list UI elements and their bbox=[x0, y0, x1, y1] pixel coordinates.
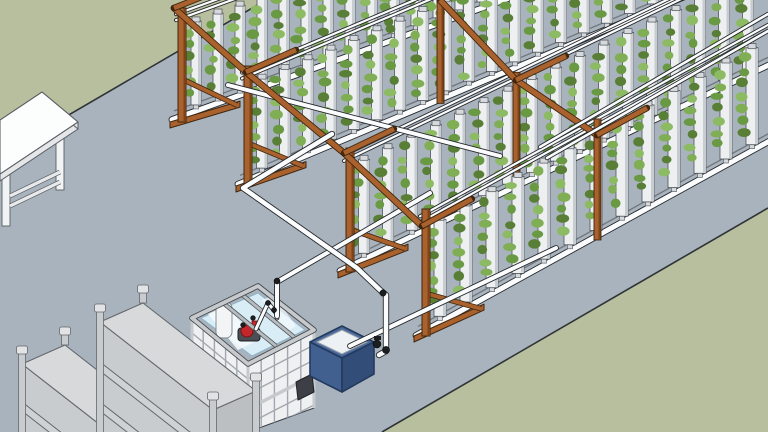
plant-foliage bbox=[584, 155, 594, 163]
plant-foliage bbox=[496, 143, 506, 151]
plant-foliage bbox=[594, 10, 606, 18]
plant-foliage bbox=[583, 165, 594, 172]
plant-foliage bbox=[496, 109, 508, 117]
plant-foliage bbox=[364, 73, 377, 82]
plant-foliage bbox=[659, 134, 671, 141]
plant-foliage bbox=[315, 15, 327, 23]
plant-foliage bbox=[503, 14, 514, 23]
plant-foliage bbox=[480, 269, 492, 276]
plant-foliage bbox=[739, 52, 752, 62]
plant-foliage bbox=[478, 25, 488, 32]
plant-foliage bbox=[528, 239, 540, 249]
plant-foliage bbox=[606, 160, 619, 170]
plant-foliage bbox=[585, 201, 593, 209]
tower-cap bbox=[258, 74, 266, 79]
plant-foliage bbox=[340, 60, 353, 68]
valve-handle bbox=[374, 336, 381, 340]
plant-foliage bbox=[297, 88, 308, 96]
plant-foliage bbox=[564, 76, 577, 85]
plant-foliage bbox=[479, 220, 492, 228]
plant-foliage bbox=[363, 51, 374, 59]
plant-foliage bbox=[478, 61, 487, 68]
plant-foliage bbox=[251, 108, 261, 116]
plant-foliage bbox=[249, 17, 262, 27]
grow-tower bbox=[658, 87, 680, 192]
plant-foliage bbox=[205, 65, 216, 75]
plant-foliage bbox=[375, 229, 386, 236]
plant-foliage bbox=[362, 85, 373, 94]
plant-foliage bbox=[572, 11, 582, 19]
plant-foliage bbox=[206, 21, 215, 29]
plant-foliage bbox=[293, 80, 304, 87]
plant-foliage bbox=[608, 185, 617, 194]
plant-foliage bbox=[519, 123, 530, 132]
plant-foliage bbox=[660, 98, 671, 108]
plant-foliage bbox=[420, 157, 433, 165]
plant-foliage bbox=[711, 130, 723, 137]
plant-foliage bbox=[477, 245, 487, 254]
plant-foliage bbox=[457, 47, 466, 54]
plant-foliage bbox=[318, 4, 327, 12]
plant-foliage bbox=[557, 227, 570, 236]
plant-foliage bbox=[735, 104, 747, 113]
plant-foliage bbox=[399, 141, 410, 150]
plant-foliage bbox=[318, 92, 329, 102]
plant-foliage bbox=[549, 30, 561, 38]
tower-cap bbox=[514, 172, 522, 177]
plant-foliage bbox=[544, 85, 556, 95]
plant-foliage bbox=[607, 141, 618, 149]
tower-cap bbox=[576, 52, 584, 57]
plant-foliage bbox=[609, 176, 618, 184]
plant-foliage bbox=[637, 183, 646, 190]
plant-foliage bbox=[296, 136, 306, 146]
plant-foliage bbox=[290, 35, 303, 44]
plant-foliage bbox=[447, 168, 460, 177]
plant-foliage bbox=[411, 65, 423, 75]
plant-foliage bbox=[712, 139, 723, 147]
grow-tower bbox=[555, 144, 576, 249]
shelf-post-cap bbox=[208, 392, 219, 400]
plant-foliage bbox=[573, 21, 582, 28]
shelf-post-cap bbox=[251, 373, 262, 381]
plant-foliage bbox=[429, 276, 438, 285]
plant-foliage bbox=[684, 144, 696, 151]
plant-foliage bbox=[341, 94, 353, 102]
plant-foliage bbox=[398, 157, 407, 164]
plant-foliage bbox=[231, 37, 240, 44]
tower-cap bbox=[304, 55, 312, 60]
plant-foliage bbox=[637, 29, 649, 37]
plant-foliage bbox=[737, 115, 748, 125]
plant-foliage bbox=[494, 133, 503, 140]
plant-foliage bbox=[272, 137, 282, 146]
plant-foliage bbox=[479, 259, 491, 266]
plant-foliage bbox=[343, 105, 353, 113]
plant-foliage bbox=[688, 130, 698, 139]
tower-cap bbox=[480, 98, 488, 103]
plant-foliage bbox=[271, 10, 283, 19]
plant-foliage bbox=[505, 182, 517, 189]
plant-foliage bbox=[468, 108, 481, 116]
tower-cap bbox=[648, 17, 656, 22]
plant-foliage bbox=[544, 73, 552, 81]
plant-foliage bbox=[384, 89, 396, 97]
tower-cap bbox=[419, 7, 427, 12]
plant-foliage bbox=[411, 79, 424, 87]
plant-foliage bbox=[248, 52, 259, 59]
plant-foliage bbox=[400, 178, 410, 188]
plant-foliage bbox=[527, 5, 539, 13]
plant-foliage bbox=[685, 32, 695, 39]
plant-foliage bbox=[209, 56, 218, 63]
plant-foliage bbox=[533, 205, 543, 215]
plant-foliage bbox=[473, 170, 484, 178]
shelf-post-cap bbox=[95, 304, 106, 312]
plant-foliage bbox=[505, 221, 515, 229]
plant-foliage bbox=[737, 128, 750, 137]
plant-foliage bbox=[661, 123, 673, 132]
plant-foliage bbox=[343, 45, 353, 54]
plant-foliage bbox=[634, 160, 645, 170]
plant-foliage bbox=[385, 25, 395, 33]
plant-foliage bbox=[341, 81, 350, 89]
plant-foliage bbox=[529, 194, 540, 203]
plant-foliage bbox=[422, 167, 431, 175]
plant-foliage bbox=[556, 214, 569, 223]
plant-foliage bbox=[638, 63, 648, 71]
plant-foliage bbox=[568, 88, 577, 97]
plant-foliage bbox=[684, 118, 696, 126]
plant-foliage bbox=[506, 254, 518, 263]
plant-foliage bbox=[555, 179, 565, 189]
plant-foliage bbox=[638, 40, 651, 48]
plant-foliage bbox=[557, 205, 566, 213]
plant-foliage bbox=[530, 183, 539, 192]
plant-foliage bbox=[592, 73, 605, 82]
plant-foliage bbox=[687, 154, 697, 162]
plant-foliage bbox=[592, 97, 601, 105]
plant-foliage bbox=[714, 70, 725, 80]
plant-foliage bbox=[558, 192, 571, 202]
plant-foliage bbox=[337, 10, 350, 18]
plant-foliage bbox=[270, 110, 283, 120]
plant-foliage bbox=[246, 29, 259, 39]
plant-foliage bbox=[533, 166, 543, 176]
plant-foliage bbox=[458, 73, 470, 80]
plant-foliage bbox=[709, 17, 721, 26]
plant-foliage bbox=[401, 194, 413, 201]
plant-foliage bbox=[366, 60, 376, 69]
plant-foliage bbox=[374, 167, 387, 177]
plant-foliage bbox=[454, 214, 465, 222]
plant-foliage bbox=[662, 156, 672, 164]
plant-foliage bbox=[616, 37, 626, 47]
plant-foliage bbox=[295, 67, 306, 76]
plant-foliage bbox=[532, 230, 543, 238]
plant-foliage bbox=[555, 165, 567, 174]
plant-foliage bbox=[569, 62, 579, 72]
plant-foliage bbox=[662, 39, 674, 47]
plant-foliage bbox=[453, 260, 464, 268]
tower-cap bbox=[432, 121, 440, 126]
tower-cap bbox=[624, 29, 632, 34]
plant-foliage bbox=[226, 23, 239, 32]
plant-foliage bbox=[713, 117, 725, 126]
plant-foliage bbox=[353, 178, 363, 187]
plant-foliage bbox=[520, 144, 529, 154]
tower-cap bbox=[748, 44, 756, 49]
plant-foliage bbox=[689, 83, 700, 91]
plant-foliage bbox=[524, 27, 536, 35]
tower-cap bbox=[350, 35, 358, 40]
plant-foliage bbox=[479, 213, 490, 220]
plant-foliage bbox=[689, 38, 698, 48]
plant-foliage bbox=[556, 157, 567, 165]
plant-foliage bbox=[637, 75, 649, 82]
plant-foliage bbox=[185, 89, 194, 97]
plant-foliage bbox=[410, 43, 419, 52]
plant-foliage bbox=[666, 28, 675, 35]
plant-foliage bbox=[362, 106, 373, 115]
plant-foliage bbox=[319, 77, 332, 86]
plant-foliage bbox=[390, 76, 399, 85]
shelf-post bbox=[210, 398, 217, 432]
plant-foliage bbox=[472, 119, 483, 127]
plant-foliage bbox=[317, 70, 328, 77]
plant-foliage bbox=[607, 149, 617, 157]
plant-foliage bbox=[251, 5, 263, 14]
plant-foliage bbox=[317, 54, 327, 64]
plant-foliage bbox=[454, 237, 463, 246]
plant-foliage bbox=[712, 30, 721, 37]
plant-foliage bbox=[480, 1, 492, 8]
plant-foliage bbox=[524, 41, 536, 49]
plant-foliage bbox=[544, 111, 553, 120]
shelf-post-cap bbox=[17, 346, 28, 354]
tower-cap bbox=[488, 187, 496, 192]
plant-foliage bbox=[269, 76, 281, 83]
plant-foliage bbox=[425, 179, 434, 188]
plant-foliage bbox=[715, 83, 726, 91]
plant-foliage bbox=[273, 125, 284, 134]
shelf-post bbox=[253, 379, 260, 432]
plant-foliage bbox=[378, 156, 388, 165]
tower-cap bbox=[672, 6, 680, 11]
plant-foliage bbox=[504, 193, 516, 200]
plant-foliage bbox=[270, 45, 281, 53]
plant-foliage bbox=[658, 111, 668, 120]
plant-foliage bbox=[493, 96, 504, 104]
plant-foliage bbox=[387, 98, 396, 108]
plant-foliage bbox=[410, 30, 419, 39]
plant-foliage bbox=[412, 17, 423, 26]
tower-cap bbox=[384, 144, 392, 149]
shelf-post bbox=[19, 352, 26, 432]
model-viewport[interactable] bbox=[0, 0, 768, 432]
plant-foliage bbox=[500, 28, 510, 35]
plant-foliage bbox=[633, 137, 644, 146]
tower-cap bbox=[600, 40, 608, 45]
plant-foliage bbox=[616, 65, 626, 75]
plant-foliage bbox=[526, 18, 536, 25]
tower-cap bbox=[281, 64, 289, 69]
plant-foliage bbox=[453, 271, 464, 281]
plant-foliage bbox=[295, 26, 307, 34]
plant-foliage bbox=[507, 204, 516, 214]
plant-foliage bbox=[473, 156, 484, 166]
plant-foliage bbox=[711, 3, 721, 11]
plant-foliage bbox=[503, 243, 516, 251]
plant-foliage bbox=[590, 62, 601, 70]
plant-foliage bbox=[501, 37, 510, 44]
plant-foliage bbox=[521, 108, 533, 117]
plant-foliage bbox=[736, 92, 748, 101]
plant-foliage bbox=[398, 165, 407, 173]
tower-cap bbox=[236, 1, 244, 6]
plant-foliage bbox=[687, 95, 697, 103]
plant-foliage bbox=[611, 199, 621, 209]
plant-foliage bbox=[687, 15, 698, 25]
plant-foliage bbox=[367, 34, 378, 44]
plant-foliage bbox=[658, 168, 670, 177]
plant-foliage bbox=[447, 180, 458, 188]
plant-foliage bbox=[615, 3, 628, 10]
plant-foliage bbox=[186, 40, 195, 48]
tower-cap bbox=[373, 26, 381, 31]
plant-foliage bbox=[505, 49, 514, 57]
plant-foliage bbox=[662, 145, 671, 152]
plant-foliage bbox=[389, 38, 399, 48]
plant-foliage bbox=[295, 9, 305, 19]
plant-foliage bbox=[385, 53, 398, 60]
plant-foliage bbox=[424, 141, 434, 150]
plant-foliage bbox=[546, 6, 557, 14]
plant-foliage bbox=[500, 2, 512, 10]
plant-foliage bbox=[635, 149, 644, 158]
plant-foliage bbox=[452, 248, 465, 257]
plant-foliage bbox=[448, 157, 457, 166]
plant-foliage bbox=[634, 175, 645, 182]
tower-cap bbox=[396, 16, 404, 21]
plant-foliage bbox=[591, 89, 603, 96]
plant-foliage bbox=[480, 10, 490, 18]
plant-foliage bbox=[375, 200, 384, 209]
plant-foliage bbox=[454, 55, 464, 65]
plant-foliage bbox=[273, 22, 283, 29]
tower-cap bbox=[504, 86, 512, 91]
plant-foliage bbox=[550, 19, 559, 27]
plant-foliage bbox=[226, 73, 239, 83]
plant-foliage bbox=[712, 103, 723, 112]
plant-foliage bbox=[615, 77, 626, 86]
plant-foliage bbox=[684, 107, 697, 115]
plant-foliage bbox=[447, 120, 460, 130]
plant-foliage bbox=[736, 77, 748, 87]
plant-foliage bbox=[546, 123, 555, 131]
plant-foliage bbox=[567, 100, 577, 107]
tower-cap bbox=[214, 9, 222, 14]
plant-foliage bbox=[615, 53, 628, 63]
plant-foliage bbox=[494, 120, 504, 128]
plant-foliage bbox=[411, 89, 421, 97]
plant-foliage bbox=[665, 52, 674, 60]
plant-foliage bbox=[479, 197, 488, 207]
plant-foliage bbox=[531, 219, 544, 228]
plant-foliage bbox=[385, 61, 396, 70]
plant-foliage bbox=[503, 230, 513, 238]
plant-foliage bbox=[410, 54, 422, 63]
plant-foliage bbox=[273, 30, 285, 39]
plant-foliage bbox=[457, 35, 466, 43]
plant-foliage bbox=[634, 121, 644, 131]
plant-foliage bbox=[363, 98, 374, 105]
plant-foliage bbox=[710, 93, 723, 100]
plant-foliage bbox=[592, 53, 605, 61]
plant-foliage bbox=[739, 68, 749, 76]
plant-foliage bbox=[251, 42, 260, 50]
plant-foliage bbox=[477, 233, 488, 241]
plant-foliage bbox=[638, 51, 649, 59]
hydroponic-farm-3d-scene bbox=[0, 0, 768, 432]
plant-foliage bbox=[663, 14, 674, 22]
tower-cap bbox=[456, 109, 464, 114]
plant-foliage bbox=[585, 173, 594, 182]
tower-cap bbox=[327, 45, 335, 50]
plant-foliage bbox=[229, 13, 241, 21]
tower-cap bbox=[360, 155, 368, 160]
plant-foliage bbox=[469, 133, 479, 141]
plant-foliage bbox=[453, 224, 465, 233]
plant-foliage bbox=[735, 4, 747, 13]
shelf-post bbox=[97, 310, 104, 432]
plant-foliage bbox=[685, 4, 698, 12]
plant-foliage bbox=[339, 70, 352, 78]
plant-foliage bbox=[316, 114, 327, 123]
